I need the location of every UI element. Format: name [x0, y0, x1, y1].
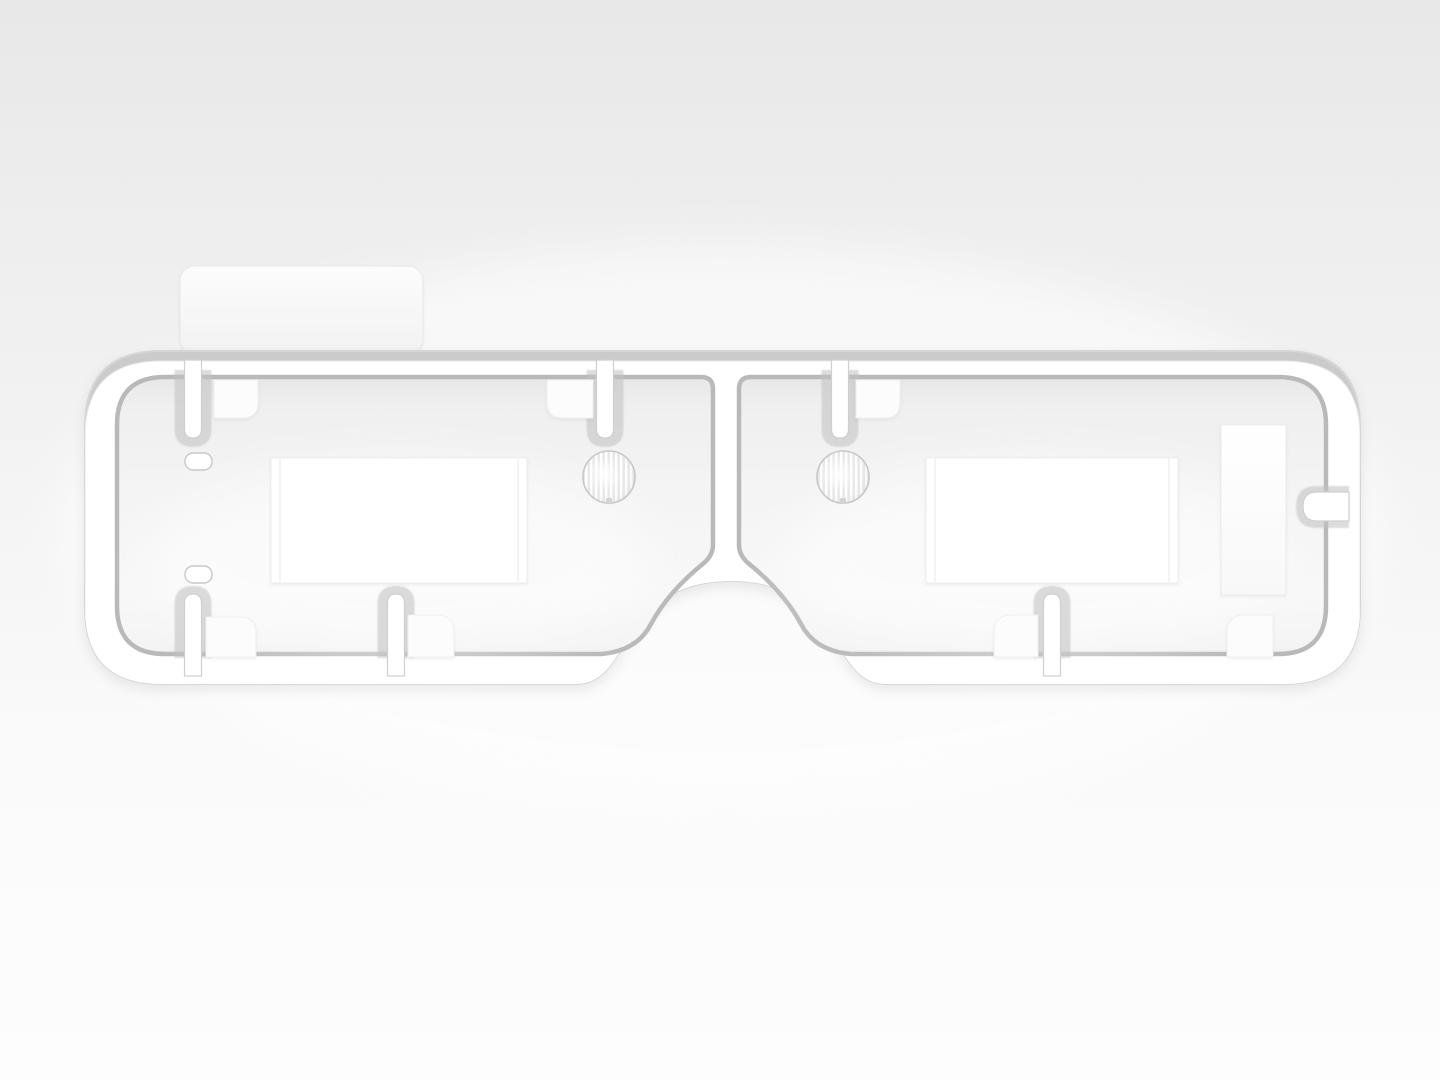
- side-plate-right: [1221, 425, 1286, 595]
- studio-backdrop: [0, 0, 1440, 1080]
- pill-slot: [185, 566, 212, 583]
- pad: [1227, 615, 1273, 657]
- top-tab: [180, 266, 423, 354]
- window-left: [271, 458, 527, 583]
- lens-disc-right: [817, 451, 869, 503]
- lens-disc-left: [583, 451, 635, 503]
- pad: [214, 380, 258, 418]
- product-render: [0, 0, 1440, 1080]
- window-right: [926, 458, 1178, 583]
- pad: [408, 615, 454, 657]
- pad: [547, 380, 593, 418]
- side-notch-right: [1296, 486, 1349, 528]
- top-stub: [175, 360, 212, 447]
- top-stub: [822, 360, 859, 447]
- pill-slot: [185, 453, 212, 470]
- pad: [856, 380, 900, 418]
- pad: [206, 617, 256, 657]
- pad: [994, 615, 1038, 657]
